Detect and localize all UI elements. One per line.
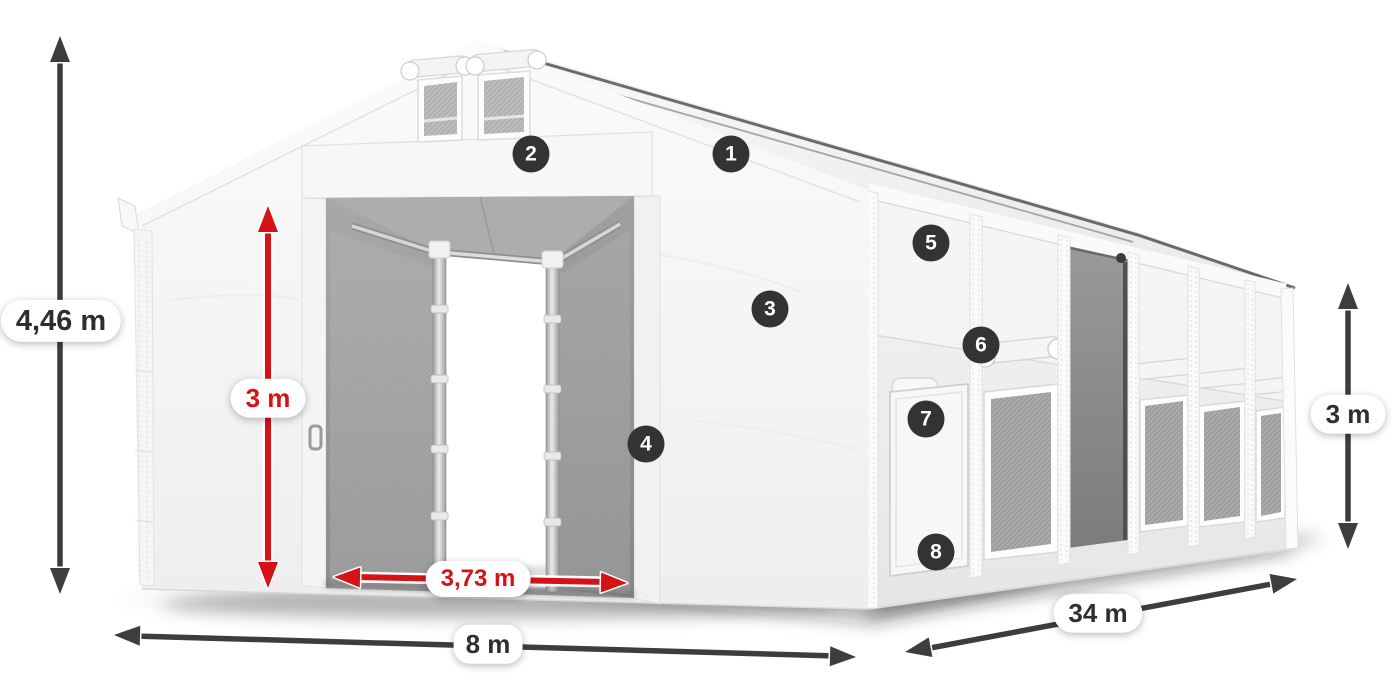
entrance-width-label: 3,73 m: [426, 561, 531, 597]
hotspot-badge-7: 7: [908, 401, 945, 438]
inner-doorway: [440, 254, 551, 588]
hotspot-badge-1: 1: [713, 136, 750, 173]
product-diagram: 4,46 m 3 m 3,73 m 8 m 34 m 3 m 1 2 3 4 5…: [0, 0, 1400, 700]
length-label: 34 m: [1053, 594, 1142, 633]
entrance-right-jamb: [634, 196, 660, 604]
entrance-height-label: 3 m: [231, 379, 306, 418]
hotspot-badge-3: 3: [752, 291, 789, 328]
hotspot-badge-5: 5: [913, 225, 950, 262]
entrance-left-jamb: [302, 198, 326, 588]
entrance-interior: [310, 196, 634, 598]
tent-illustration: [0, 0, 1400, 700]
width-label: 8 m: [454, 625, 523, 664]
hotspot-badge-2: 2: [513, 136, 550, 173]
total-height-label: 4,46 m: [1, 300, 121, 342]
side-opening: [1066, 247, 1130, 548]
hotspot-badge-8: 8: [918, 534, 955, 571]
side-height-label: 3 m: [1311, 395, 1386, 434]
hotspot-badge-6: 6: [963, 327, 1000, 364]
hotspot-badge-4: 4: [628, 426, 665, 463]
